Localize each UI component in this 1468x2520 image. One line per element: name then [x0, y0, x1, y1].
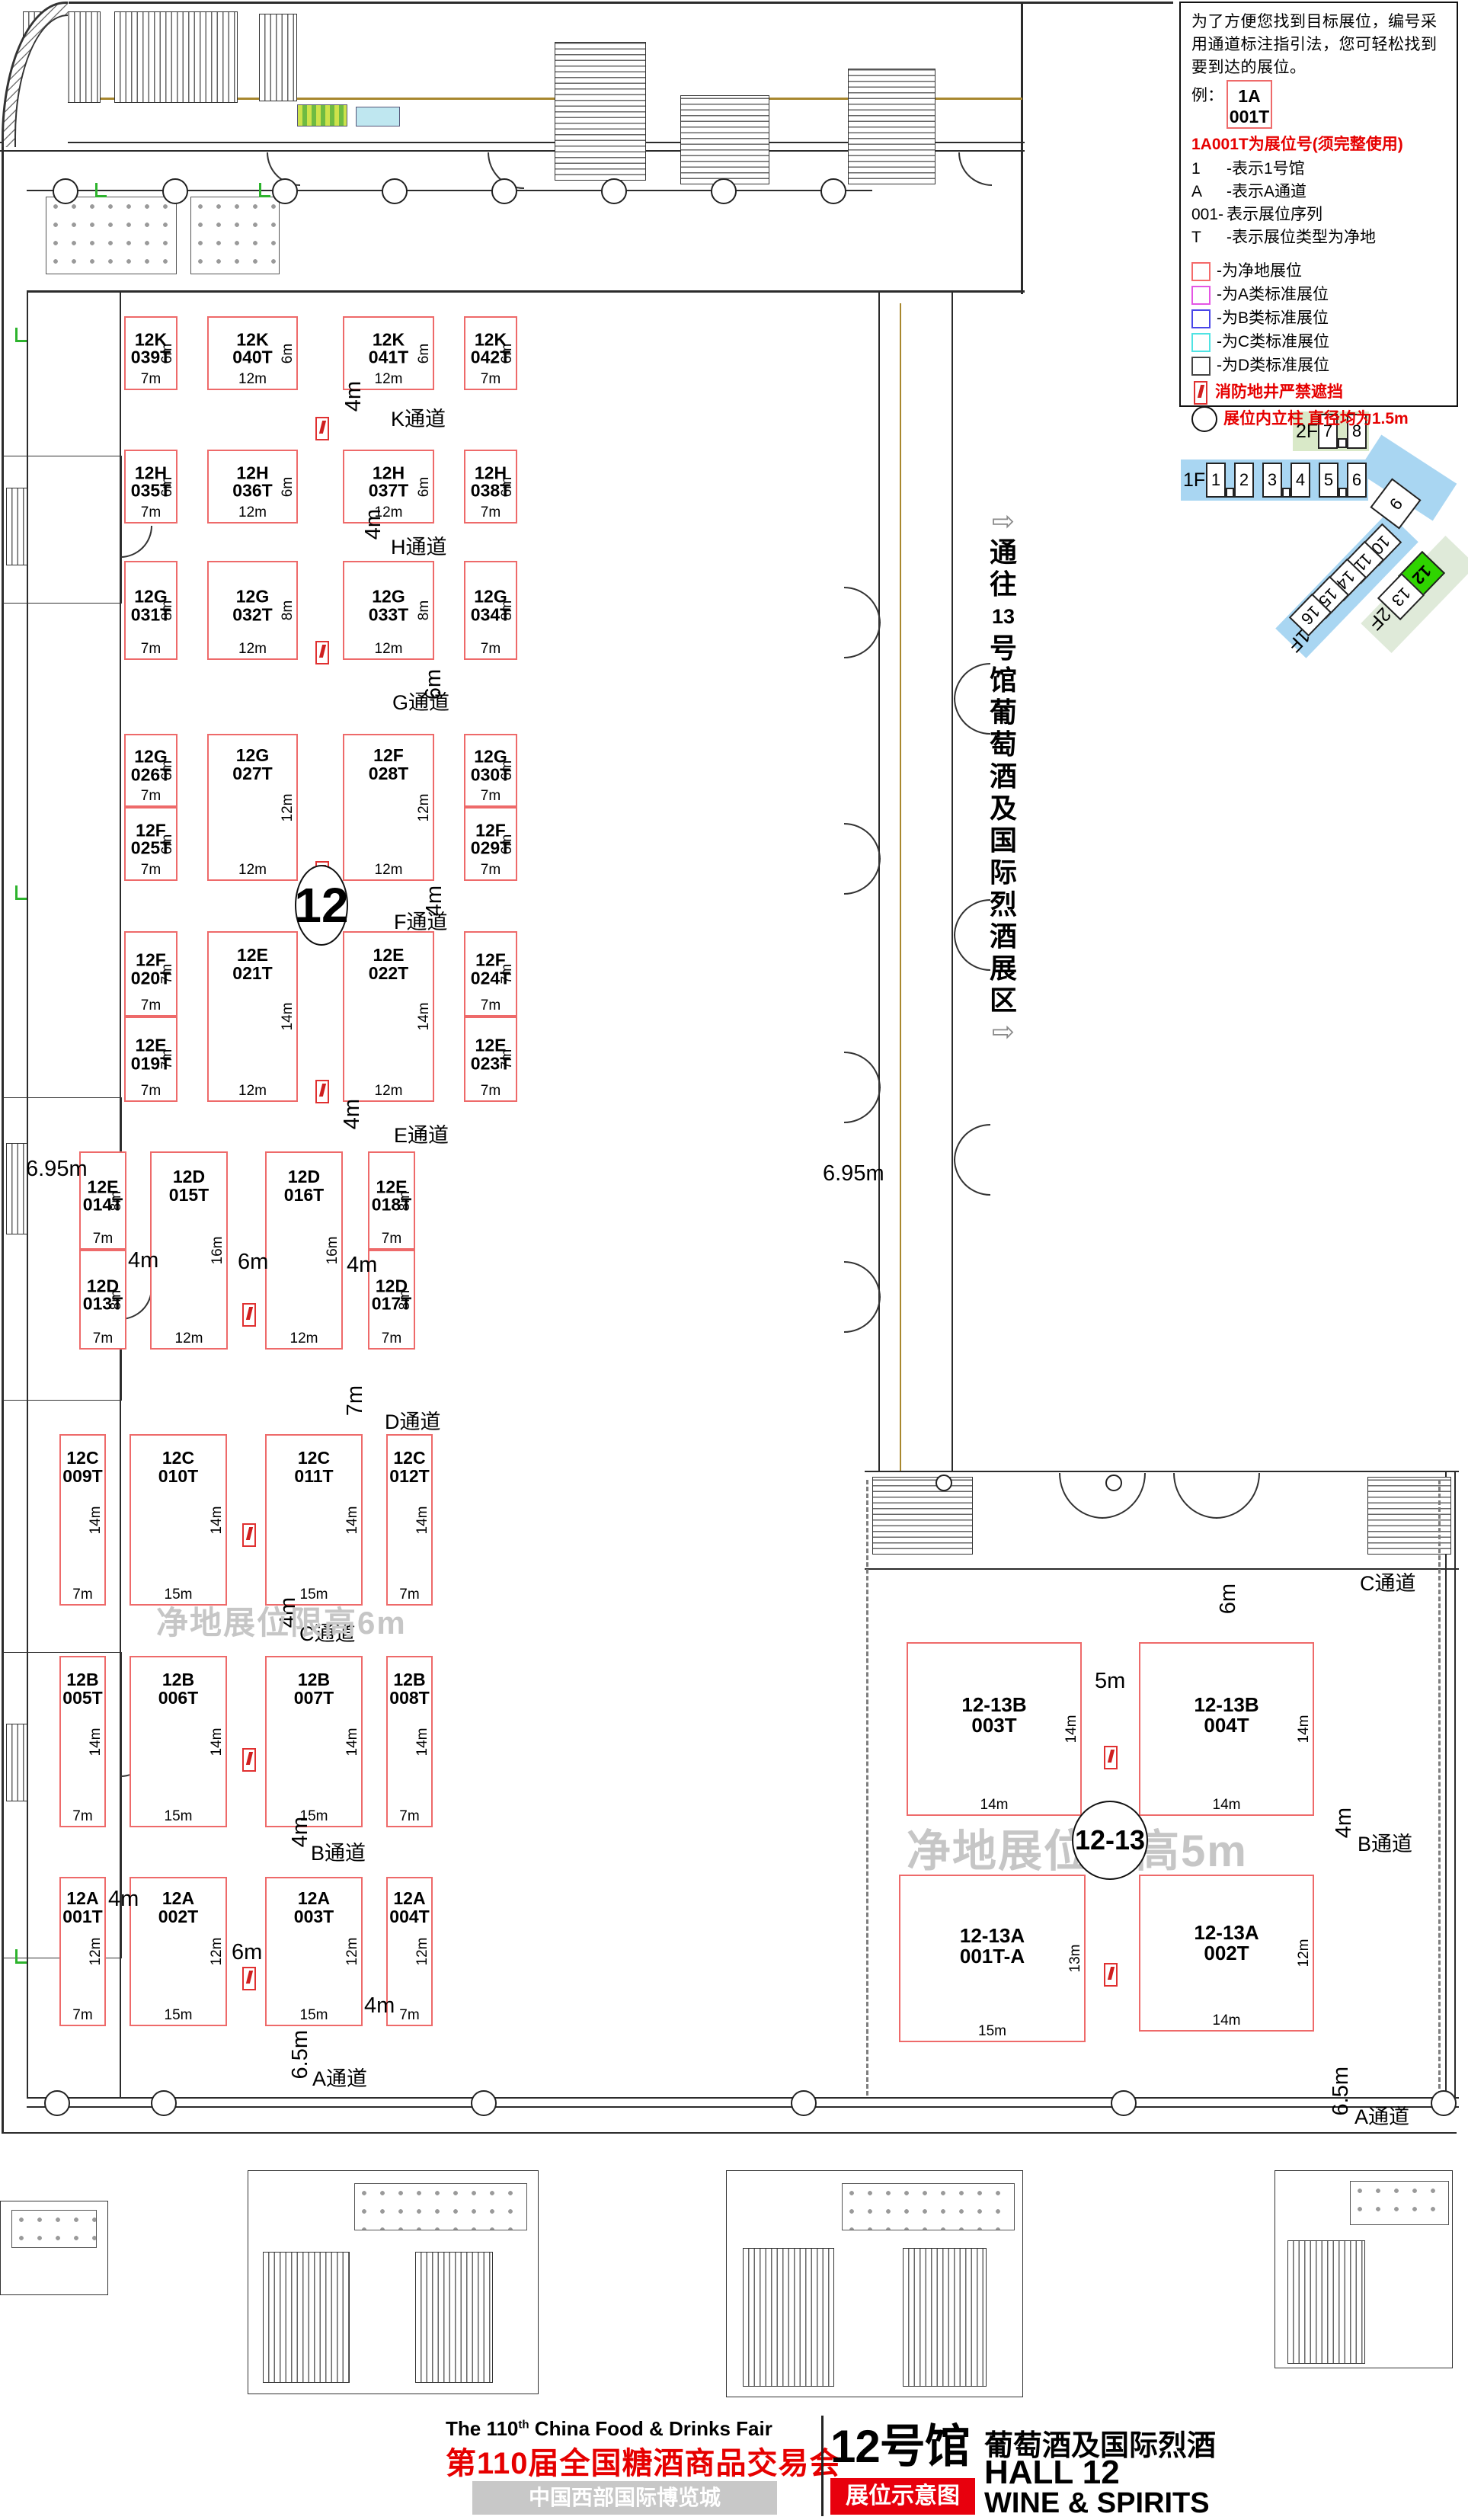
wall: [1454, 1471, 1456, 2099]
fire-well-icon: [242, 1748, 256, 1772]
booth-width-label: 7m: [61, 1808, 104, 1825]
legend-type: -为B类标准展位: [1191, 307, 1447, 331]
booth-code: 12B006T: [131, 1671, 225, 1708]
legend-type: -为D类标准展位: [1191, 354, 1447, 378]
wall: [27, 2106, 1459, 2108]
moving-walkway: [356, 107, 400, 126]
wall: [27, 98, 590, 100]
aisle-width-C通道: 6m: [1216, 1583, 1241, 1614]
booth-width-label: 7m: [81, 1231, 125, 1247]
booth-depth-label: 14m: [416, 1003, 433, 1031]
fire-well-icon: [315, 641, 329, 664]
door-arc: [1173, 1473, 1217, 1519]
dimension-label: 6.95m: [26, 1157, 88, 1182]
booth-width-label: 12m: [209, 1083, 296, 1100]
door-arc: [954, 698, 990, 735]
fire-well-icon: [242, 1303, 256, 1327]
booth-code: 12F028T: [344, 747, 433, 783]
booth-code: 12E019T: [126, 1036, 176, 1073]
booth-12G031T: 12G031T7m8m: [124, 561, 178, 660]
aisle-label-A通道: A通道: [1354, 2100, 1409, 2130]
booth-12G032T: 12G032T12m8m: [207, 561, 298, 660]
booth-width-label: 12m: [344, 641, 433, 658]
booth-code: 12A004T: [388, 1890, 431, 1926]
booth-width-label: 7m: [61, 2007, 104, 2024]
hall-category-en: WINE & SPIRITS: [984, 2487, 1210, 2520]
door-arc: [844, 823, 881, 860]
booth-width-label: 15m: [900, 2023, 1084, 2040]
booth-width-label: 15m: [131, 1808, 225, 1825]
fair-title-cn: 第110届全国糖酒商品交易会: [446, 2438, 841, 2483]
utility-mark: [15, 1949, 27, 1964]
stairs: [848, 69, 935, 184]
aisle-width-G通道: 6m: [421, 669, 446, 700]
wall: [2, 2132, 1457, 2134]
booth-code: 12G034T: [465, 588, 516, 624]
booth-12-13A002T: 12-13A002T14m12m: [1139, 1875, 1314, 2032]
booth-width-label: 14m: [1140, 1797, 1313, 1814]
aisle-width-F通道: 4m: [422, 885, 447, 916]
pillar-icon: [1191, 406, 1217, 432]
door-arc: [844, 1296, 881, 1333]
booth-code: 12D016T: [267, 1168, 341, 1205]
booth-depth-label: 14m: [209, 1506, 225, 1534]
booth-width-label: 12m: [344, 504, 433, 521]
to-hall-13-note: ⇨通往13号馆葡萄酒及国际烈酒展区⇨: [986, 506, 1021, 1047]
booth-12B007T: 12B007T15m14m: [265, 1656, 363, 1827]
booth-width-label: 12m: [344, 862, 433, 879]
booth-depth-label: 14m: [344, 1506, 361, 1534]
corridor-note-char: 国: [986, 825, 1021, 857]
booth-12B006T: 12B006T15m14m: [130, 1656, 227, 1827]
corridor-note-char: 通: [986, 536, 1021, 568]
stairs: [680, 95, 769, 184]
booth-code: 12E021T: [209, 946, 296, 983]
booth-12E021T: 12E021T12m14m: [207, 931, 298, 1102]
booth-width-label: 12m: [209, 862, 296, 879]
booth-depth-label: 14m: [414, 1506, 431, 1534]
column: [151, 2090, 177, 2116]
wall: [865, 1471, 1459, 1472]
wall: [900, 303, 901, 1472]
booth-code: 12A001T: [61, 1890, 104, 1926]
booth-width-label: 7m: [369, 1330, 414, 1347]
door-arc: [844, 1261, 881, 1298]
aisle-label-D通道: D通道: [385, 1405, 441, 1435]
hall-name-cn: 12号馆: [830, 2410, 970, 2476]
corridor-note-char: 萄: [986, 728, 1021, 760]
fire-well-icon: [1104, 1746, 1118, 1769]
column: [935, 1475, 952, 1491]
aisle-label-H通道: H通道: [391, 530, 447, 560]
stairs: [259, 14, 297, 101]
door-arc: [844, 587, 881, 623]
booth-depth-label: 14m: [88, 1506, 104, 1534]
booth-12D013T: 12D013T7m8m: [79, 1250, 126, 1350]
minimap-hall-1: 1: [1206, 463, 1226, 498]
booth-code: 12D017T: [369, 1277, 414, 1314]
booth-code: 12-13A001T-A: [900, 1926, 1084, 1967]
booth-width-label: 12m: [152, 1330, 226, 1347]
booth-code: 12B008T: [388, 1671, 431, 1708]
dimension-label: 6.95m: [823, 1161, 884, 1186]
booth-code: 12C009T: [61, 1449, 104, 1486]
door-arc: [844, 858, 881, 895]
legend-type: -为净地展位: [1191, 260, 1447, 283]
wall: [951, 293, 953, 1472]
section-boundary-dashed: [866, 1480, 868, 2096]
booth-12A001T: 12A001T7m12m: [59, 1877, 106, 2026]
booth-code: 12H038T: [465, 464, 516, 501]
booth-width-label: 15m: [267, 1808, 361, 1825]
booth-12F029T: 12F029T7m6m: [464, 807, 517, 881]
booth-12A002T: 12A002T15m12m: [130, 1877, 227, 2026]
column: [162, 178, 188, 204]
booth-code: 12K042T: [465, 331, 516, 367]
booth-width-label: 15m: [267, 2007, 361, 2024]
wall: [1445, 1471, 1447, 2099]
booth-code: 12E014T: [81, 1178, 125, 1215]
arrow-icon: ⇨: [986, 506, 1021, 536]
booth-width-label: 7m: [465, 1083, 516, 1100]
booth-12C011T: 12C011T15m14m: [265, 1434, 363, 1606]
booth-depth-label: 14m: [88, 1727, 104, 1756]
code-definitions: 1-表示1号馆A-表示A通道001-表示展位序列T-表示展位类型为净地: [1191, 158, 1447, 248]
booth-12A003T: 12A003T15m12m: [265, 1877, 363, 2026]
booth-depth-label: 14m: [414, 1727, 431, 1756]
legend-intro: 为了方便您找到目标展位，编号采用通道标注指引法，您可轻松找到要到达的展位。: [1191, 11, 1447, 78]
booth-code: 12F024T: [465, 951, 516, 988]
wall: [1021, 2, 1023, 294]
booth-12H038T: 12H038T7m6m: [464, 450, 517, 524]
door-arc: [954, 934, 990, 971]
booth-12K039T: 12K039T7m6m: [124, 316, 178, 390]
service-room: [726, 2170, 1023, 2397]
booth-width-label: 7m: [61, 1587, 104, 1603]
booth-width-label: 7m: [126, 504, 176, 521]
minimap-hall-4: 4: [1290, 463, 1310, 498]
corridor-note-char: 酒: [986, 760, 1021, 793]
utility-mark: [15, 885, 27, 900]
booth-depth-label: 12m: [209, 1938, 225, 1966]
restroom-fixtures: [190, 197, 280, 274]
column: [382, 178, 408, 204]
arrow-icon: ⇨: [986, 1017, 1021, 1047]
door-arc: [958, 152, 992, 186]
footer-divider: [821, 2416, 824, 2516]
booth-12-13B003T: 12-13B003T14m14m: [907, 1642, 1082, 1816]
booth-12K041T: 12K041T12m6m: [343, 316, 434, 390]
height-limit-watermark-left: 净地展位限高6m: [156, 1597, 407, 1644]
booth-width-label: 7m: [81, 1330, 125, 1347]
corridor-note-char: 际: [986, 857, 1021, 889]
booth-12E023T: 12E023T7m7m: [464, 1017, 517, 1102]
utility-mark: [259, 183, 270, 197]
door-arc: [1059, 1473, 1103, 1519]
minimap-connector: [1226, 488, 1234, 498]
booth-12C010T: 12C010T15m14m: [130, 1434, 227, 1606]
booth-code: 12A002T: [131, 1890, 225, 1926]
booth-code: 12G031T: [126, 588, 176, 624]
booth-width-label: 12m: [267, 1330, 341, 1347]
corridor-note-char: 往: [986, 568, 1021, 600]
column: [1431, 2090, 1457, 2116]
door-arc: [844, 1087, 881, 1123]
booth-width-label: 7m: [126, 788, 176, 805]
booth-width-label: 7m: [465, 788, 516, 805]
section-boundary-dashed: [1438, 1480, 1441, 2096]
booth-code: 12K040T: [209, 331, 296, 367]
column: [1111, 2090, 1137, 2116]
booth-depth-label: 12m: [416, 793, 433, 821]
escalator: [297, 104, 347, 126]
booth-code: 12F020T: [126, 951, 176, 988]
legend-type: -为A类标准展位: [1191, 283, 1447, 307]
minimap-1f-label: 1F: [1183, 469, 1205, 492]
aisle-label-E通道: E通道: [394, 1119, 449, 1148]
hall-12-floor-plan: 12K039T7m6m12K040T12m6m12K041T12m6m12K04…: [0, 0, 1468, 2520]
booth-width-label: 12m: [209, 504, 296, 521]
fire-well-note: 消防地井严禁遮挡: [1191, 381, 1447, 405]
dimension-label: 4m: [108, 1887, 139, 1912]
minimap-hall-6: 6: [1347, 463, 1367, 498]
corridor-note-char: 号: [986, 632, 1021, 664]
booth-width-label: 7m: [465, 504, 516, 521]
corridor-note-char: 及: [986, 793, 1021, 825]
booth-width-label: 12m: [209, 371, 296, 388]
booth-12F020T: 12F020T7m7m: [124, 931, 178, 1017]
column: [44, 2090, 70, 2116]
hall-12-13-badge: 12-13: [1072, 1801, 1148, 1880]
example-label: 例：: [1191, 85, 1223, 107]
stairs: [114, 11, 238, 103]
door-arc: [954, 1124, 990, 1161]
booth-code: 12G027T: [209, 747, 296, 783]
booth-12C009T: 12C009T7m14m: [59, 1434, 106, 1606]
booth-12K042T: 12K042T7m6m: [464, 316, 517, 390]
booth-code: 12H035T: [126, 464, 176, 501]
door-arc: [1216, 1473, 1260, 1519]
booth-code: 12G026T: [126, 748, 176, 784]
booth-width-label: 7m: [126, 862, 176, 879]
aisle-width-A通道: 6.5m: [1329, 2067, 1354, 2115]
booth-width-label: 7m: [126, 371, 176, 388]
pillar-note: 展位内立柱 直径均为1.5m: [1191, 406, 1447, 432]
booth-12E022T: 12E022T12m14m: [343, 931, 434, 1102]
example-booth-line1: 1A: [1228, 86, 1271, 106]
booth-12-13A001T-A: 12-13A001T-A15m13m: [899, 1875, 1086, 2042]
dimension-label: 4m: [347, 1253, 377, 1278]
booth-code: 12F029T: [465, 821, 516, 858]
booth-12-13B004T: 12-13B004T14m14m: [1139, 1642, 1314, 1816]
legend-box: 为了方便您找到目标展位，编号采用通道标注指引法，您可轻松找到要到达的展位。 例：…: [1179, 2, 1458, 407]
aisle-label-C通道: C通道: [1360, 1567, 1416, 1596]
door-arc: [120, 526, 152, 558]
corridor-note-char: 13: [986, 600, 1021, 632]
booth-code: 12B007T: [267, 1671, 361, 1708]
door-arc: [954, 663, 990, 700]
legend-type: -为C类标准展位: [1191, 331, 1447, 354]
minimap-connector: [1338, 488, 1347, 498]
dimension-label: 6m: [238, 1250, 268, 1275]
fire-well-icon: [242, 1523, 256, 1547]
booth-width-label: 7m: [388, 1808, 431, 1825]
booth-12H036T: 12H036T12m6m: [207, 450, 298, 524]
booth-depth-label: 14m: [344, 1727, 361, 1756]
booth-type-legend: -为净地展位-为A类标准展位-为B类标准展位-为C类标准展位-为D类标准展位: [1191, 260, 1447, 378]
booth-width-label: 7m: [126, 997, 176, 1014]
booth-12K040T: 12K040T12m6m: [207, 316, 298, 390]
column: [711, 178, 737, 204]
booth-code: 12K039T: [126, 331, 176, 367]
column: [1105, 1475, 1122, 1491]
booth-code: 12D013T: [81, 1277, 125, 1314]
booth-code: 12C010T: [131, 1449, 225, 1486]
booth-width-label: 14m: [1140, 2012, 1313, 2029]
booth-depth-label: 12m: [280, 793, 296, 821]
corridor-note-char: 烈: [986, 889, 1021, 921]
corridor-note-char: 区: [986, 985, 1021, 1017]
booth-width-label: 7m: [465, 371, 516, 388]
service-room: [0, 2201, 108, 2295]
booth-code: 12B005T: [61, 1671, 104, 1708]
booth-code: 12D015T: [152, 1168, 226, 1205]
legend-def: A-表示A通道: [1191, 181, 1447, 203]
booth-width-label: 7m: [465, 862, 516, 879]
column: [272, 178, 298, 204]
booth-code: 12-13A002T: [1140, 1923, 1313, 1964]
column: [471, 2090, 497, 2116]
dimension-label: 5m: [1095, 1669, 1125, 1694]
booth-width-label: 7m: [465, 641, 516, 658]
title-block: The 110th China Food & Drinks Fair 第110届…: [0, 2408, 1468, 2520]
minimap-connector: [1338, 438, 1347, 448]
utility-mark: [95, 183, 107, 197]
booth-12H035T: 12H035T7m6m: [124, 450, 178, 524]
service-room: [2, 456, 122, 604]
booth-width-label: 12m: [344, 1083, 433, 1100]
door-arc: [954, 899, 990, 936]
booth-code: 12A003T: [267, 1890, 361, 1926]
door-arc: [954, 1159, 990, 1196]
aisle-label-B通道: B通道: [311, 1836, 366, 1866]
example-booth-line2: 001T: [1228, 107, 1271, 126]
corridor-note-char: 展: [986, 953, 1021, 985]
utility-mark: [15, 328, 27, 342]
fire-well-icon: [242, 1967, 256, 1990]
aisle-label-B通道: B通道: [1358, 1827, 1412, 1857]
booth-12G030T: 12G030T7m6m: [464, 734, 517, 807]
booth-depth-label: 14m: [280, 1003, 296, 1031]
aisle-width-B通道: 4m: [288, 1817, 313, 1847]
aisle-width-E通道: 4m: [340, 1099, 365, 1129]
booth-code: 12C011T: [267, 1449, 361, 1486]
aisle-label-K通道: K通道: [391, 402, 446, 432]
booth-code: 12F025T: [126, 821, 176, 858]
corridor-note-char: 葡: [986, 696, 1021, 728]
booth-code: 12E018T: [369, 1178, 414, 1215]
stairs: [872, 1477, 973, 1555]
booth-code: 12H036T: [209, 464, 296, 501]
booth-12H037T: 12H037T12m6m: [343, 450, 434, 524]
minimap-hall-2: 2: [1234, 463, 1254, 498]
venue-name: 中国西部国际博览城: [472, 2481, 777, 2515]
dimension-label: 4m: [364, 1993, 395, 2019]
booth-depth-label: 12m: [414, 1938, 431, 1966]
service-room: [1275, 2170, 1453, 2368]
booth-12G034T: 12G034T7m8m: [464, 561, 517, 660]
door-arc: [844, 1052, 881, 1088]
booth-depth-label: 16m: [325, 1237, 341, 1265]
restroom-fixtures: [46, 197, 177, 274]
wall: [69, 2, 1173, 4]
fire-well-text: 消防地井严禁遮挡: [1215, 381, 1343, 404]
legend-def: T-表示展位类型为净地: [1191, 226, 1447, 249]
minimap-hall-3: 3: [1262, 463, 1282, 498]
dimension-label: 4m: [128, 1248, 158, 1273]
map-tag: 展位示意图: [830, 2478, 975, 2515]
booth-width-label: 7m: [369, 1231, 414, 1247]
booth-code: 12G032T: [209, 588, 296, 624]
pillar-text: 展位内立柱 直径均为1.5m: [1223, 408, 1409, 431]
aisle-width-K通道: 4m: [341, 381, 366, 411]
column: [820, 178, 846, 204]
service-room: [248, 2170, 539, 2394]
corridor-note-char: 酒: [986, 921, 1021, 953]
booth-width-label: 7m: [126, 641, 176, 658]
booth-12E018T: 12E018T7m8m: [368, 1151, 415, 1250]
fire-well-icon: [1104, 1963, 1118, 1987]
hall-name-en: HALL 12: [984, 2454, 1120, 2492]
example-booth: 1A 001T: [1227, 80, 1272, 129]
hall-12-badge: 12: [295, 865, 348, 946]
booth-width-label: 7m: [126, 1083, 176, 1100]
booth-code: 12C012T: [388, 1449, 431, 1486]
dimension-label: 6m: [232, 1940, 262, 1965]
stairs: [555, 42, 646, 181]
aisle-label-A通道: A通道: [312, 2062, 367, 2092]
fire-well-icon: [1194, 381, 1207, 405]
aisle-width-D通道: 7m: [343, 1385, 368, 1416]
fire-well-icon: [315, 417, 329, 440]
wall: [27, 190, 872, 191]
booth-depth-label: 12m: [344, 1938, 361, 1966]
corridor-note-char: 馆: [986, 664, 1021, 696]
booth-code: 12E022T: [344, 946, 433, 983]
column: [491, 178, 517, 204]
booth-code: 12-13B003T: [908, 1695, 1080, 1736]
aisle-width-H通道: 4m: [361, 509, 386, 540]
wall: [27, 2097, 1459, 2099]
booth-12C012T: 12C012T7m14m: [386, 1434, 433, 1606]
minimap-hall-5: 5: [1319, 463, 1338, 498]
column: [53, 178, 78, 204]
fair-title-en: The 110th China Food & Drinks Fair: [446, 2417, 772, 2441]
booth-depth-label: 16m: [209, 1237, 226, 1265]
booth-12D015T: 12D015T12m16m: [150, 1151, 228, 1350]
aisle-width-B通道: 4m: [1332, 1808, 1357, 1838]
aisle-width-A通道: 6.5m: [288, 2030, 313, 2079]
booth-code: 12G030T: [465, 748, 516, 784]
booth-code: 12-13B004T: [1140, 1695, 1313, 1736]
booth-code: 12H037T: [344, 464, 433, 501]
booth-12G026T: 12G026T7m6m: [124, 734, 178, 807]
booth-width-label: 15m: [131, 2007, 225, 2024]
legend-def: 001-表示展位序列: [1191, 203, 1447, 226]
booth-12F025T: 12F025T7m6m: [124, 807, 178, 881]
booth-12F024T: 12F024T7m7m: [464, 931, 517, 1017]
booth-depth-label: 12m: [88, 1938, 104, 1966]
